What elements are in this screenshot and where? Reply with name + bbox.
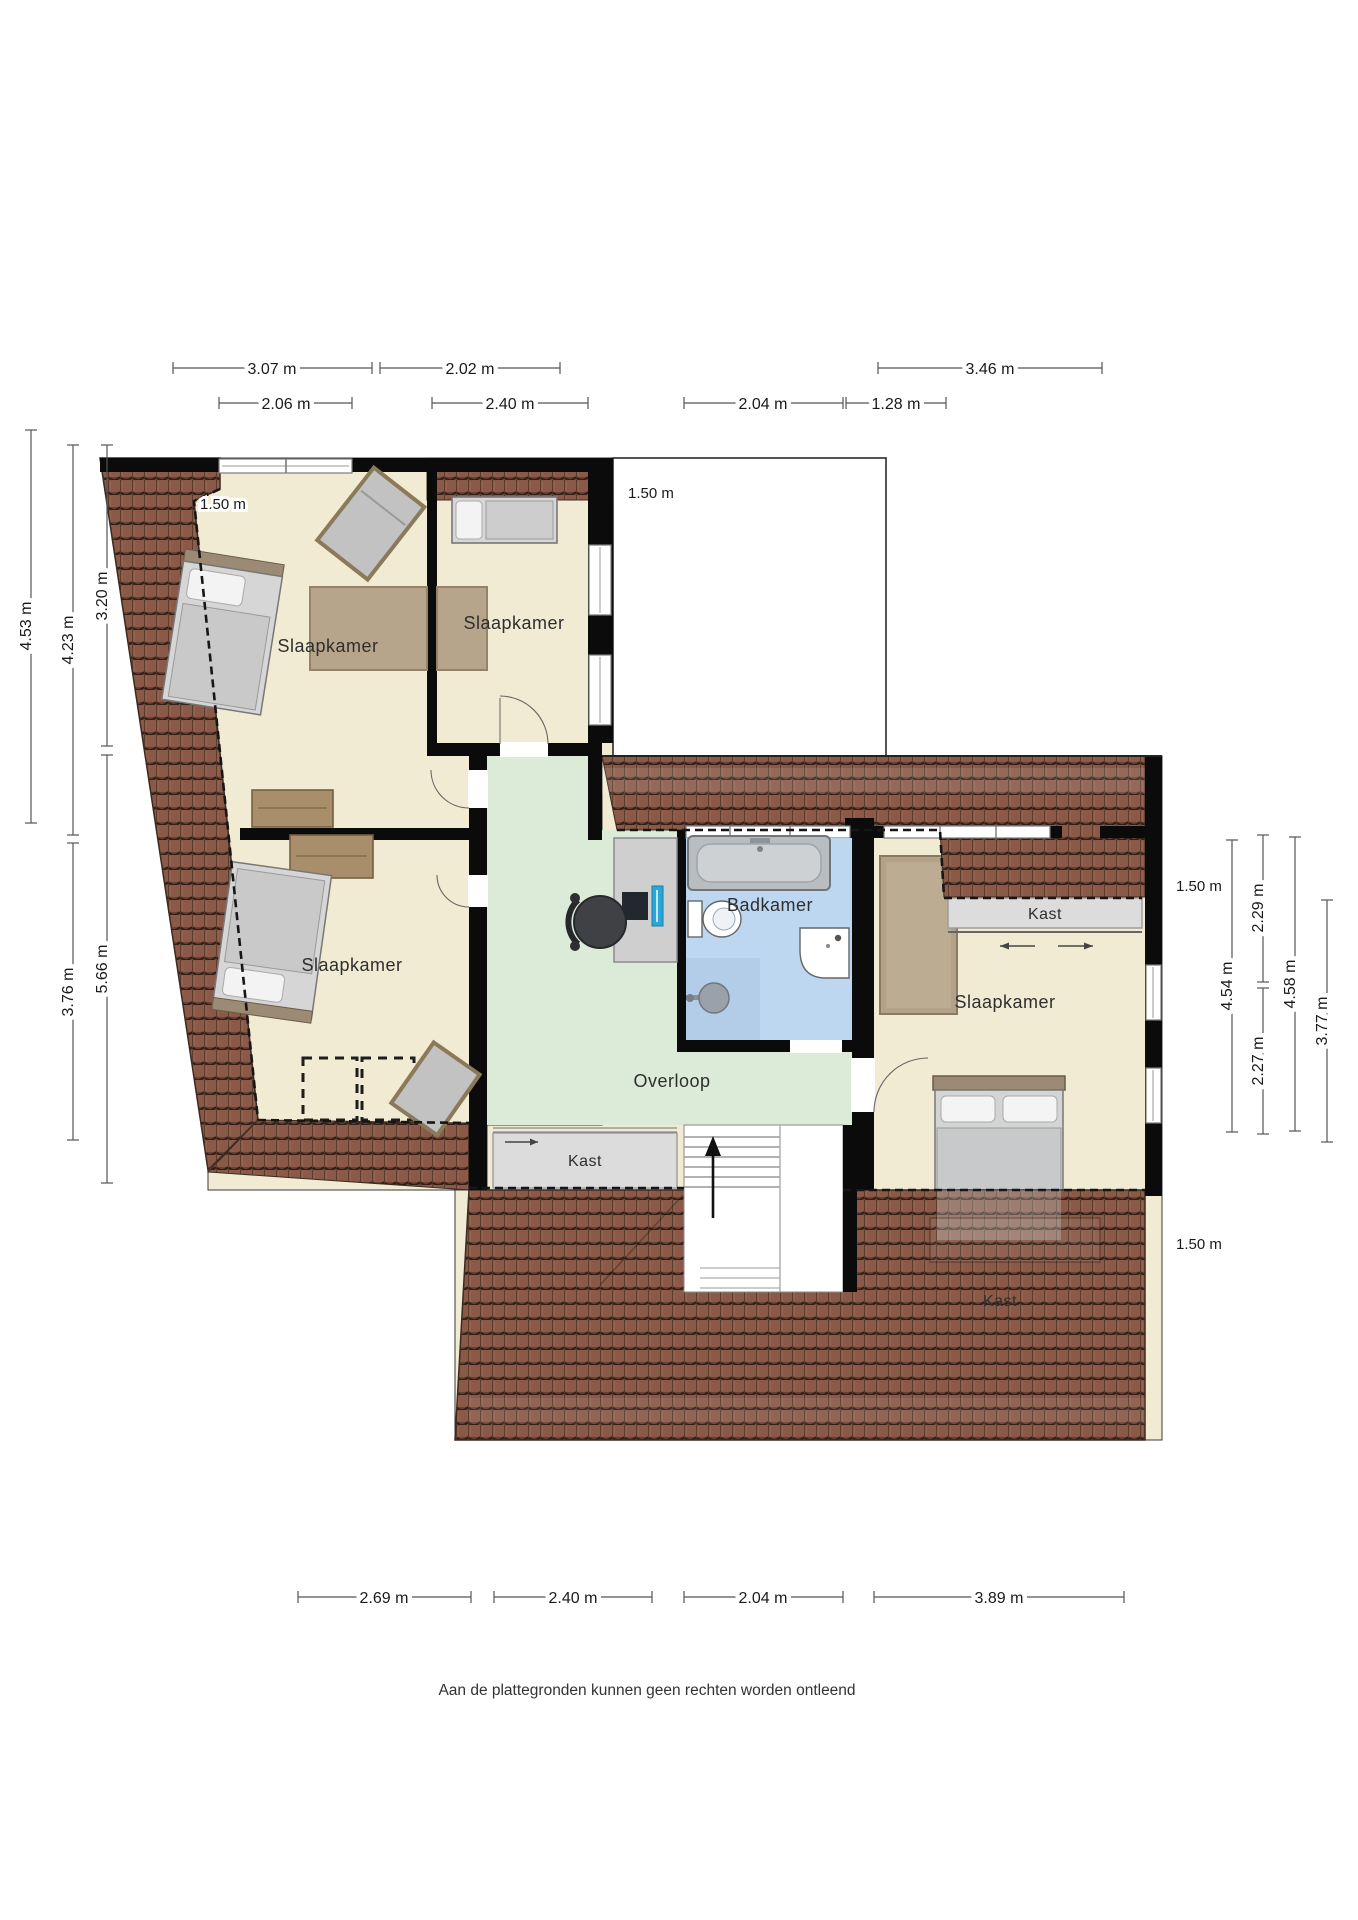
door-right-bedroom xyxy=(851,1058,875,1112)
window-middle-bedroom-lower xyxy=(589,655,611,725)
label-closet-right: Kast xyxy=(1028,906,1062,923)
svg-text:2.02 m: 2.02 m xyxy=(446,361,495,378)
label-bedroom-bottom-left: Slaapkamer xyxy=(301,955,402,975)
shower xyxy=(686,958,760,1040)
bed-middle xyxy=(452,497,557,543)
floorplan-page: Slaapkamer Slaapkamer Slaapkamer Slaapka… xyxy=(0,0,1358,1920)
svg-text:2.40 m: 2.40 m xyxy=(549,1590,598,1607)
svg-text:3.20 m: 3.20 m xyxy=(94,572,111,621)
headroom-void: 1.50 m xyxy=(628,485,674,502)
dim-top-307: 3.07 m xyxy=(173,361,372,378)
window-middle-bedroom-upper xyxy=(589,545,611,615)
dim-bottom-240: 2.40 m xyxy=(494,1590,652,1607)
svg-text:2.06 m: 2.06 m xyxy=(262,396,311,413)
dim-top-202: 2.02 m xyxy=(380,361,560,378)
svg-text:1.28 m: 1.28 m xyxy=(872,396,921,413)
svg-text:2.40 m: 2.40 m xyxy=(486,396,535,413)
headroom-top-left: 1.50 m xyxy=(200,496,246,513)
dim-right-227: 2.27 m xyxy=(1250,988,1269,1134)
svg-text:3.77 m: 3.77 m xyxy=(1314,997,1331,1046)
roof-sheen-top xyxy=(602,768,1145,794)
svg-text:2.04 m: 2.04 m xyxy=(739,1590,788,1607)
svg-text:4.54 m: 4.54 m xyxy=(1219,962,1236,1011)
rug-top-left xyxy=(310,587,427,670)
dim-top-204: 2.04 m xyxy=(684,396,843,413)
window-right-wall-upper xyxy=(1146,965,1161,1020)
floorplan-canvas: Slaapkamer Slaapkamer Slaapkamer Slaapka… xyxy=(0,0,1358,1920)
svg-text:3.76 m: 3.76 m xyxy=(60,968,77,1017)
svg-text:5.66 m: 5.66 m xyxy=(94,945,111,994)
svg-text:4.53 m: 4.53 m xyxy=(18,602,35,651)
dim-bottom-204: 2.04 m xyxy=(684,1590,843,1607)
label-bathroom: Badkamer xyxy=(727,895,813,915)
desk-top-left xyxy=(252,790,333,827)
door-middle-bedroom xyxy=(500,742,548,757)
bathtub xyxy=(688,836,830,890)
dim-left-423: 4.23 m xyxy=(60,445,79,835)
label-bedroom-middle: Slaapkamer xyxy=(463,613,564,633)
dim-top-240: 2.40 m xyxy=(432,396,588,413)
roof-sheen-bottom xyxy=(469,1398,1145,1424)
svg-text:2.29 m: 2.29 m xyxy=(1250,884,1267,933)
label-closet-left: Kast xyxy=(568,1153,602,1170)
dim-right-229: 2.29 m xyxy=(1250,835,1269,982)
dim-top-206: 2.06 m xyxy=(219,396,352,413)
window-top-left xyxy=(219,459,352,473)
dim-left-453: 4.53 m xyxy=(18,430,37,823)
dim-left-376: 3.76 m xyxy=(60,843,79,1140)
door-topleft-bedroom xyxy=(468,770,488,808)
svg-text:2.27 m: 2.27 m xyxy=(1250,1037,1267,1086)
window-right-wall-lower xyxy=(1146,1068,1161,1123)
dim-right-458: 4.58 m xyxy=(1282,837,1301,1131)
door-bathroom xyxy=(790,1039,842,1053)
label-landing: Overloop xyxy=(633,1071,710,1091)
label-closet-under-roof: Kast xyxy=(983,1293,1017,1310)
dim-bottom-269: 2.69 m xyxy=(298,1590,471,1607)
bed-bottom-left xyxy=(212,862,332,1023)
disclaimer-text: Aan de plattegronden kunnen geen rechten… xyxy=(438,1682,855,1699)
stairwell xyxy=(684,1125,843,1292)
window-right-bedroom-top xyxy=(884,826,1050,838)
dim-left-566: 5.66 m xyxy=(94,755,113,1183)
void-open-area xyxy=(613,458,886,756)
svg-text:2.04 m: 2.04 m xyxy=(739,396,788,413)
svg-text:3.89 m: 3.89 m xyxy=(975,1590,1024,1607)
svg-text:4.23 m: 4.23 m xyxy=(60,616,77,665)
svg-text:3.46 m: 3.46 m xyxy=(966,361,1015,378)
dim-top-128: 1.28 m xyxy=(846,396,946,413)
svg-text:3.07 m: 3.07 m xyxy=(248,361,297,378)
door-bottomleft-bedroom xyxy=(468,875,488,907)
label-bedroom-top-left: Slaapkamer xyxy=(277,636,378,656)
headroom-right-upper: 1.50 m xyxy=(1176,878,1222,895)
headroom-right-lower: 1.50 m xyxy=(1176,1236,1222,1253)
office-chair xyxy=(568,893,626,951)
landing-desk xyxy=(614,838,677,962)
dim-right-377: 3.77 m xyxy=(1314,900,1333,1142)
shower-head-icon xyxy=(699,983,729,1013)
label-bedroom-right: Slaapkamer xyxy=(954,992,1055,1012)
dim-top-346: 3.46 m xyxy=(878,361,1102,378)
dim-bottom-389: 3.89 m xyxy=(874,1590,1124,1607)
svg-text:4.58 m: 4.58 m xyxy=(1282,960,1299,1009)
sink xyxy=(800,928,849,978)
svg-text:2.69 m: 2.69 m xyxy=(360,1590,409,1607)
